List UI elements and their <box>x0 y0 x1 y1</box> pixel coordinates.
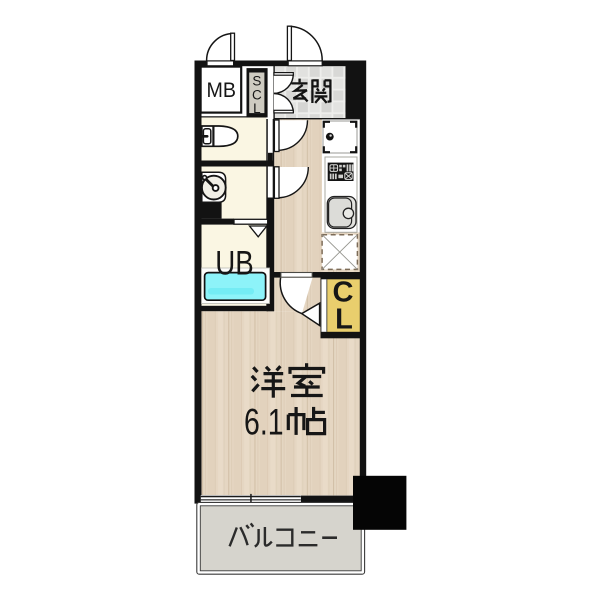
svg-text:MB: MB <box>207 79 237 102</box>
svg-text:L: L <box>253 101 261 116</box>
svg-text:S: S <box>252 74 261 89</box>
svg-text:6.1: 6.1 <box>244 401 284 442</box>
svg-text:L: L <box>335 304 353 336</box>
svg-text:UB: UB <box>215 245 254 283</box>
